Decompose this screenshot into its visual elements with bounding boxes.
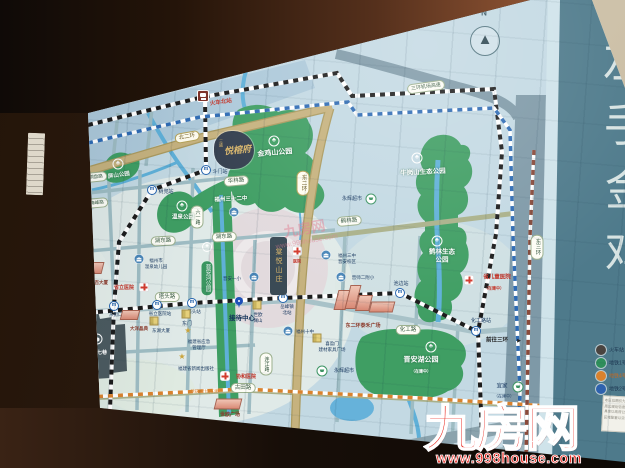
building-dayang xyxy=(120,310,140,320)
station-label-yuefeng-line2: 北站 xyxy=(280,310,294,316)
poi-label-yonghui-1: 永辉超市 xyxy=(342,196,362,202)
road-label-dongerhuan: 东二环 xyxy=(297,171,310,196)
school-label-erfuxiao: 晋师二附小 xyxy=(352,275,375,281)
poi-label-yingji-line1: 福建省应急 xyxy=(188,339,211,345)
hospital-cross-icon xyxy=(221,372,230,381)
park-icon: ♣ xyxy=(202,242,212,252)
road-label-hudonglu: 湖东路 xyxy=(150,235,175,246)
building-shiou-plaza xyxy=(214,399,243,410)
metro-station-icon: m xyxy=(152,300,162,310)
jinanhu-lake xyxy=(330,395,374,421)
station-label-yuefeng-line1: 岳峰镇 xyxy=(280,304,294,310)
watermark-url: www.998house.com xyxy=(436,451,582,467)
school-label-yixiao: 晋安一小 xyxy=(223,276,241,282)
panel-calligraphy-char: 金 xyxy=(605,153,625,219)
poi-label-xiyingmen-line2: 建材家具广场 xyxy=(319,347,346,353)
poi-label-xiyingmen: 喜盈门 建材家具广场 xyxy=(319,341,346,353)
sanfang-seal-icon xyxy=(92,334,103,345)
panel-calligraphy-char: 手 xyxy=(604,89,625,155)
project-name: 悦榕府 xyxy=(223,142,251,158)
supermarket-icon xyxy=(366,194,377,205)
park-label-wenquan: 温泉公园 xyxy=(172,215,194,222)
map-disclaimer-box: 本区位图仅为示意 周边规划信息仅供参考 具体以政府公示为准 区域配套以实际为准 xyxy=(601,395,625,433)
poi-label-yijia-status: （在建中） xyxy=(494,394,514,399)
park-label-zuohai: 左海公园 xyxy=(41,195,63,202)
poi-label-shengli-hospital: 省立医院 xyxy=(114,285,134,291)
poi-label-ertong: 省儿童医院 xyxy=(483,275,511,282)
supermarket-icon xyxy=(317,366,328,377)
panel-calligraphy-char: 鸡 xyxy=(605,217,625,283)
road-label-gutianlu: 古田路 xyxy=(231,383,256,393)
wall-sticker xyxy=(26,133,45,196)
metro-station-icon: m xyxy=(147,185,157,195)
park-label-jinanhu: 晋安湖公园 xyxy=(404,357,439,366)
poi-label-dayang: 大洋晶典 xyxy=(130,326,148,332)
legend-label-metro1: 地铁1号线 xyxy=(609,360,625,367)
station-label-shudou: 树兜站 xyxy=(158,189,173,195)
poi-label-dongmen: 东门 xyxy=(182,321,192,327)
project-logo-blob: 三盛 悦榕府 xyxy=(214,131,254,169)
building-taihe-4 xyxy=(369,302,396,313)
gov-star-icon: ★ xyxy=(178,353,185,361)
metro-station-icon: m xyxy=(187,298,197,308)
legend-metro1-icon xyxy=(596,358,606,368)
to-third-ring-label: 前往三环 xyxy=(486,338,508,345)
school-label-sanzhong-line2: 晋安校区 xyxy=(338,259,356,265)
station-label-chibian: 池边站 xyxy=(393,281,408,287)
gov-star-icon: ★ xyxy=(184,327,191,335)
school-icon xyxy=(337,273,346,282)
poi-label-donghu: 东湖大厦 xyxy=(152,328,170,334)
station-label-huagonglu: 化工路站 xyxy=(471,318,491,324)
school-label-kindergarten: 福州市 温泉幼儿园 xyxy=(145,258,168,270)
compass: ▲ xyxy=(470,26,500,56)
station-label-yuefeng: 岳峰镇 北站 xyxy=(280,304,294,316)
building-icon xyxy=(182,310,191,319)
legend-label-metro4: 地铁4号线（在建） xyxy=(609,373,625,380)
metro-station-icon: m xyxy=(201,165,211,175)
metro4-inline-note: 地铁4号线(在建) xyxy=(191,389,220,394)
school-label-shizhong: 福州十中 xyxy=(296,329,314,335)
legend-label-train: 火车站 xyxy=(609,347,624,354)
school-label-kind-line2: 温泉幼儿园 xyxy=(145,264,168,270)
school-icon xyxy=(230,208,239,217)
metro-station-icon: m xyxy=(471,326,481,336)
watermark-brand: 九房网 xyxy=(424,404,577,454)
to-third-ring-arrow-icon: ▶ xyxy=(517,338,521,344)
park-icon: ♣ xyxy=(426,342,437,353)
road-label-meifenglu: 梅峰路 xyxy=(86,197,108,209)
park-icon: ♣ xyxy=(432,236,443,247)
photo-of-map-screen: 北二环 东二环 东三环 三环机场高速 鹤林路 化工路 塔头路 湖东路 湖东路 华… xyxy=(0,0,625,468)
poi-label-xinwen: 福建省新闻出版社 xyxy=(178,366,214,372)
park-icon: ♣ xyxy=(46,182,57,193)
building-icon xyxy=(150,317,159,326)
park-icon: ♣ xyxy=(269,136,280,147)
building-icon xyxy=(253,301,262,310)
road-label-huagonglu: 化工路 xyxy=(396,325,421,335)
park-icon: ♣ xyxy=(412,153,423,164)
building-dongbai xyxy=(80,262,105,274)
school-label-sanzhong-line1: 福州三中 xyxy=(338,253,356,259)
metro-station-icon: m xyxy=(395,288,405,298)
hospital-cross-icon xyxy=(140,283,149,292)
hospital-cross-icon xyxy=(465,276,474,285)
poi-label-hospital-r: 医院 xyxy=(293,259,301,264)
legend-label-metro2: 地铁2号线 xyxy=(609,386,625,393)
park-label-jinanhu-status: （在建中） xyxy=(411,369,431,374)
disclaimer-line: 区域配套以实际为准 xyxy=(604,415,625,422)
poi-label-sanfang: 三坊七巷 xyxy=(87,350,107,356)
legend-metro4-icon xyxy=(596,371,606,381)
school-icon xyxy=(284,327,293,336)
poi-label-xiehe: 协和医院 xyxy=(236,374,256,380)
poi-label-ertong-status: （在建中） xyxy=(484,286,504,291)
poi-label-reception: 接待中心 xyxy=(229,315,255,323)
station-label-doumen: 斗门站 xyxy=(212,169,227,175)
park-label-jinanhe: 晋安河公园 xyxy=(201,260,214,296)
reception-pin-icon xyxy=(235,297,243,305)
road-label-dongsanhuan: 东三环 xyxy=(531,235,544,260)
poi-label-dongbai: 东百大厦 xyxy=(90,280,108,286)
supermarket-icon xyxy=(513,382,524,393)
school-icon xyxy=(250,273,259,282)
legend-train-icon xyxy=(596,345,606,355)
competitor-project-box: 棠悦山庄 xyxy=(270,237,287,295)
legend-metro2-icon xyxy=(596,384,606,394)
park-label-helin: 鹤林生态 公园 xyxy=(429,249,455,266)
poi-label-yingji: 福建省应急 管理厅 xyxy=(188,339,211,351)
poi-label-yijia: 宜家 xyxy=(496,384,507,391)
road-label-lianjianglu: 连江路 xyxy=(260,353,273,376)
poi-label-yingji-line2: 管理厅 xyxy=(188,345,211,351)
school-icon xyxy=(135,255,144,264)
train-station-icon xyxy=(197,90,209,102)
metro-station-icon: m xyxy=(109,301,119,311)
park-icon: ♣ xyxy=(48,219,59,230)
park-label-xihu: 西湖公园 xyxy=(44,232,66,239)
park-icon: ♣ xyxy=(113,159,124,170)
road-label-hudonglu-2: 湖东路 xyxy=(211,231,236,242)
school-label-sanzhong: 福州三中 晋安校区 xyxy=(338,253,356,265)
park-icon: ♣ xyxy=(177,201,188,212)
poi-label-shiou-plaza: 世欧广场 xyxy=(220,412,240,418)
school-icon xyxy=(322,251,331,260)
poi-label-yonghui-2: 永辉超市 xyxy=(334,368,354,374)
hospital-cross-icon xyxy=(293,247,302,256)
compass-needle-icon: ▲ xyxy=(471,27,499,53)
poi-label-taihe: 东二环泰禾广场 xyxy=(345,323,380,329)
park-label-helin-line2: 公园 xyxy=(429,257,455,265)
